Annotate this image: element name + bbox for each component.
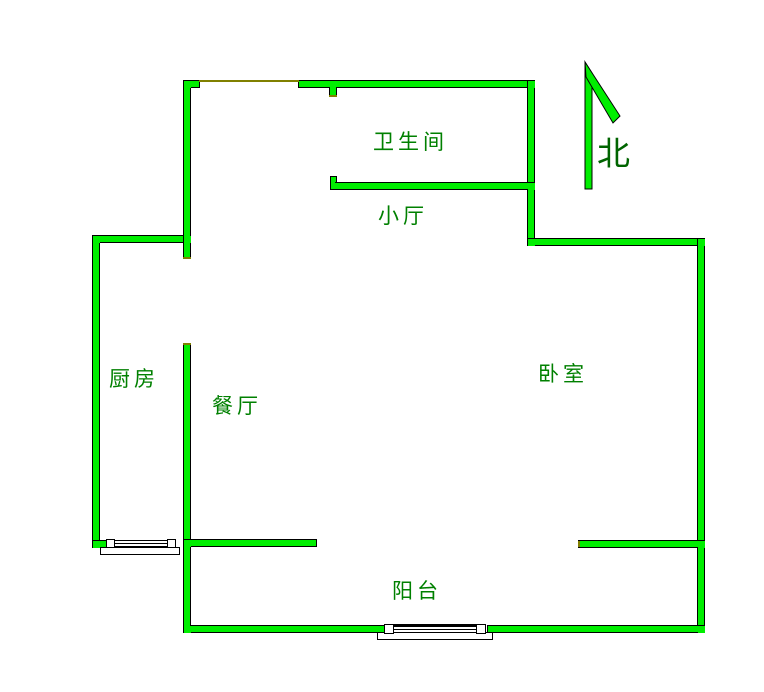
wall-bottom-right-segment <box>487 625 705 633</box>
room-label-bathroom: 卫生间 <box>373 131 448 154</box>
room-label-kitchen: 厨房 <box>109 368 159 391</box>
door-cap-bath-stub <box>329 95 337 97</box>
door-cap-divider-upper <box>183 257 191 259</box>
floor-plan: 北 卫生间 小厅 厨房 餐厅 卧室 阳台 <box>0 0 764 692</box>
wall-kitchen-left <box>92 235 100 548</box>
wall-balcony-divider-right <box>578 540 705 548</box>
wall-divider-upper <box>183 80 191 259</box>
wall-outer-right <box>697 238 705 633</box>
balcony-window-end-right <box>476 624 486 634</box>
wall-joint <box>698 541 705 548</box>
wall-joint <box>698 239 705 246</box>
door-cap-divider-lower <box>183 343 191 345</box>
wall-bottom-left-segment <box>183 625 385 633</box>
wall-bathroom-bottom <box>330 182 535 190</box>
room-label-balcony: 阳台 <box>392 580 442 603</box>
room-label-dining: 餐厅 <box>212 395 262 418</box>
wall-balcony-divider-left <box>183 539 317 547</box>
wall-joint <box>528 239 535 246</box>
wall-joint <box>528 183 535 190</box>
room-label-bedroom: 卧室 <box>538 363 588 386</box>
kitchen-window-sill <box>100 547 180 555</box>
kitchen-window-end-right <box>167 539 176 548</box>
wall-divider-lower <box>183 343 191 633</box>
wall-joint <box>184 626 191 633</box>
balcony-window-pane <box>393 624 477 633</box>
wall-joint <box>330 87 336 90</box>
wall-joint <box>184 236 191 243</box>
wall-joint <box>93 236 100 243</box>
kitchen-window-pane <box>114 540 168 547</box>
door-cap-balcony-divider <box>578 541 580 547</box>
room-label-hall: 小厅 <box>378 205 428 228</box>
wall-joint <box>698 626 705 633</box>
north-arrow-icon <box>573 54 635 199</box>
wall-joint <box>93 541 100 548</box>
wall-kitchen-top <box>92 235 191 243</box>
wall-bedroom-top <box>528 238 705 246</box>
wall-bathroom-right <box>527 80 535 246</box>
entry-door-line <box>199 80 299 82</box>
wall-joint <box>331 181 335 186</box>
wall-joint <box>184 81 191 88</box>
wall-joint <box>528 81 535 88</box>
north-label: 北 <box>597 137 630 172</box>
wall-joint <box>184 540 191 547</box>
